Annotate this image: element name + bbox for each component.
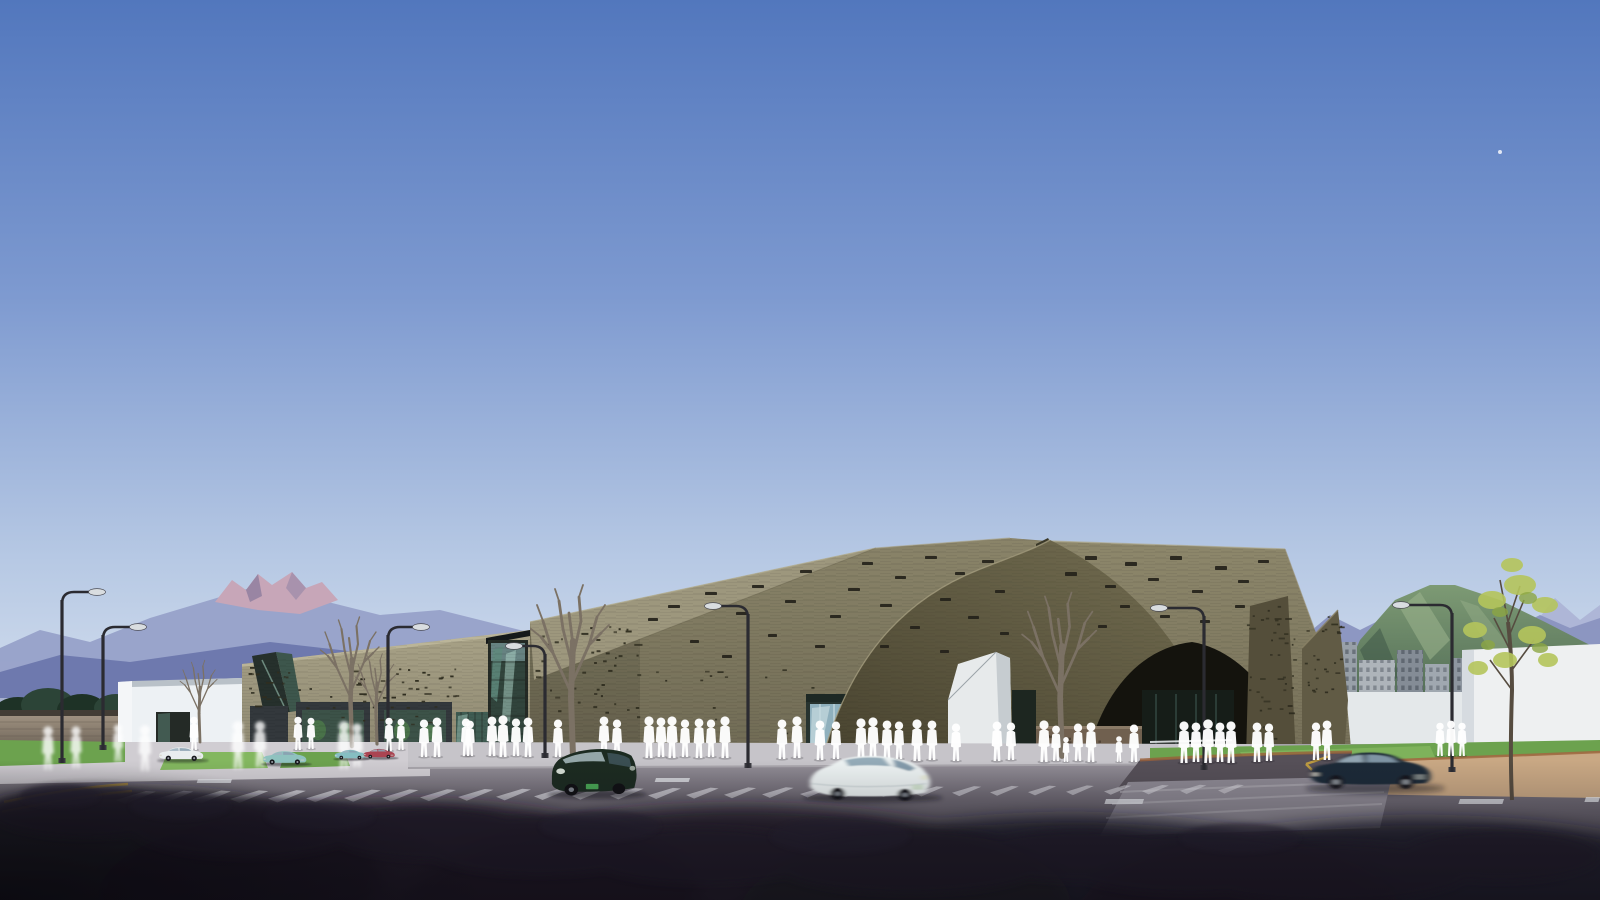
architectural-rendering [0,0,1600,900]
distant-bird-speck [1498,150,1502,154]
rendering-canvas [0,0,1600,900]
